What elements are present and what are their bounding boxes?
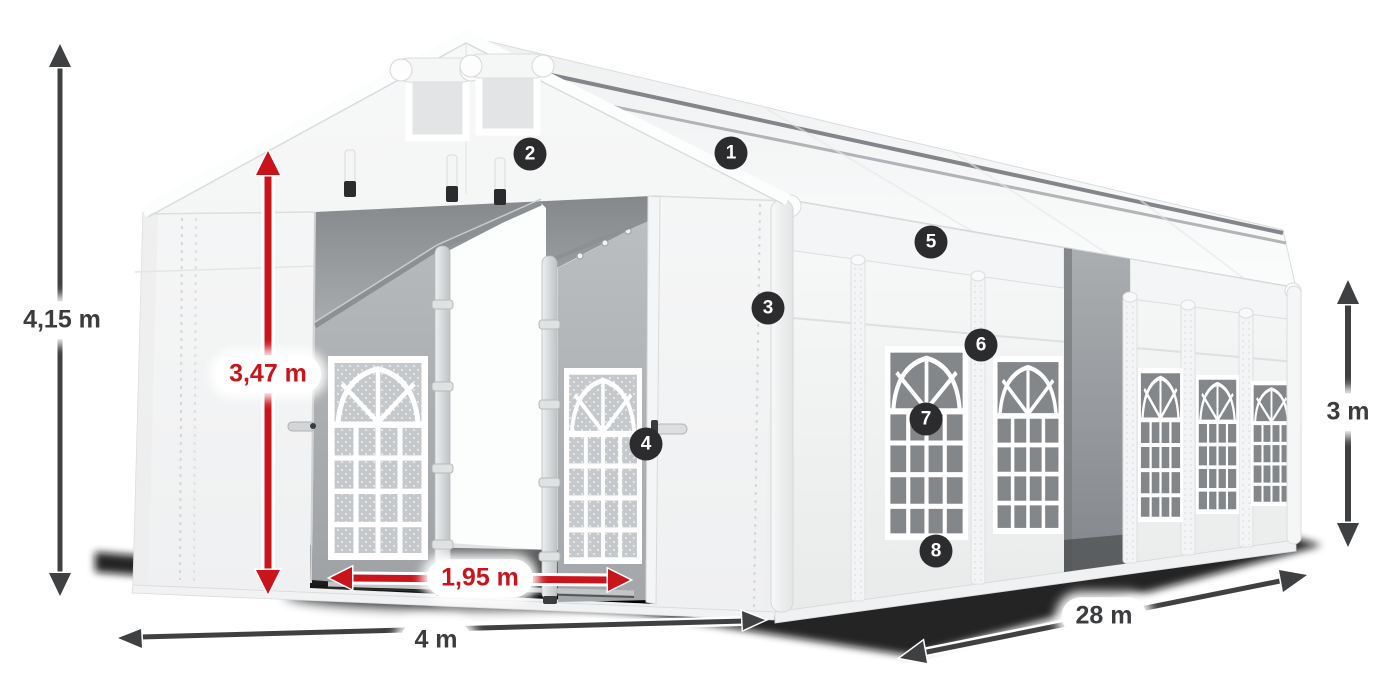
- dimension-label-length: 28 m: [1062, 597, 1147, 635]
- entrance-opening-interior: [310, 196, 660, 604]
- door-frame-post: [542, 256, 557, 600]
- callout-badge-7[interactable]: 7: [910, 403, 943, 436]
- dimension-label-entrance-width: 1,95 m: [427, 559, 533, 597]
- front-corner-post: [771, 200, 793, 612]
- callout-badge-3[interactable]: 3: [752, 292, 785, 325]
- door-handle: [288, 422, 316, 431]
- callout-badge-6[interactable]: 6: [965, 329, 998, 362]
- callout-badge-4[interactable]: 4: [630, 428, 663, 461]
- back-corner-post: [1287, 286, 1301, 544]
- side-door-opening: [1064, 248, 1130, 572]
- arched-window: [1252, 383, 1291, 504]
- arched-window: [887, 349, 965, 537]
- dimension-label-entrance-height: 3,47 m: [215, 355, 321, 393]
- tent-dimension-diagram: 4,15 m 3,47 m 1,95 m 4 m 28 m 3 m 1 2 3 …: [0, 0, 1400, 700]
- dimension-label-front-width: 4 m: [400, 621, 471, 659]
- arched-window: [1197, 377, 1237, 512]
- dimension-label-side-height: 3 m: [1312, 393, 1383, 431]
- see-through-opening: [450, 203, 546, 550]
- callout-badge-2[interactable]: 2: [514, 138, 547, 171]
- callout-badge-5[interactable]: 5: [915, 226, 948, 259]
- arched-window: [995, 359, 1061, 531]
- callout-badge-8[interactable]: 8: [920, 535, 953, 568]
- arched-window: [1139, 370, 1181, 519]
- tent-illustration: [0, 0, 1400, 700]
- dimension-label-total-height: 4,15 m: [9, 301, 115, 339]
- callout-badge-1[interactable]: 1: [715, 137, 748, 170]
